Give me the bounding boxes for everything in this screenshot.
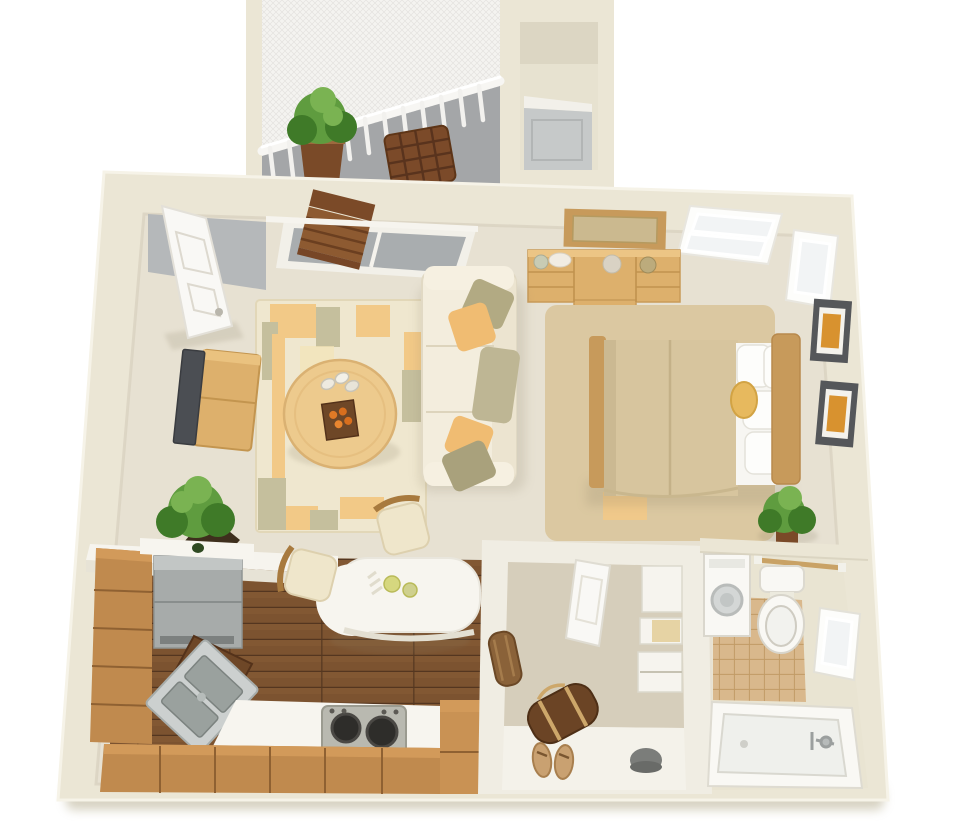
tv-console: [173, 347, 261, 451]
bedroom-window-right: [786, 230, 838, 308]
bathroom-window: [814, 608, 860, 680]
plate-1: [384, 576, 400, 592]
kitchen-cabinets-bottom: [100, 744, 440, 794]
burner-1: [332, 714, 360, 742]
doily: [549, 253, 571, 267]
plate-2: [403, 583, 417, 597]
washer: [704, 554, 750, 636]
closet-shelves: [638, 566, 682, 692]
tub-drain: [740, 740, 748, 748]
floorplan-svg: [0, 0, 960, 832]
burner-2: [367, 717, 397, 747]
bathtub: [708, 702, 862, 788]
bathroom: [704, 552, 868, 790]
headboard: [772, 334, 800, 484]
balcony-planter: [300, 140, 344, 182]
vase-1: [534, 255, 548, 269]
footboard: [589, 336, 606, 488]
sofa-armrest-top: [424, 266, 514, 290]
berry-tray: [322, 400, 359, 440]
sofa: [418, 266, 526, 494]
refrigerator: [154, 556, 242, 648]
lace-mat: [603, 255, 621, 273]
wall-art-1: [810, 299, 852, 363]
toilet-tank: [760, 566, 804, 592]
bedroom-window-top: [678, 206, 782, 264]
vase-2: [640, 257, 656, 273]
mirror: [563, 209, 666, 250]
entry-niche: [520, 22, 598, 170]
green-bottle: [192, 543, 204, 553]
bed: [586, 334, 800, 506]
floorplan-render: [0, 0, 960, 832]
wall-art-2: [815, 380, 858, 447]
toilet: [758, 566, 804, 653]
door-knob: [215, 308, 223, 316]
breakfast-bar: [316, 558, 480, 654]
kitchen-cabinets-left: [90, 548, 152, 744]
beanie: [630, 748, 662, 773]
round-gold-pillow: [731, 382, 757, 418]
walk-in-closet: [478, 540, 712, 794]
balcony-block: [246, 0, 614, 198]
kitchen-cabinet-right: [440, 700, 484, 794]
